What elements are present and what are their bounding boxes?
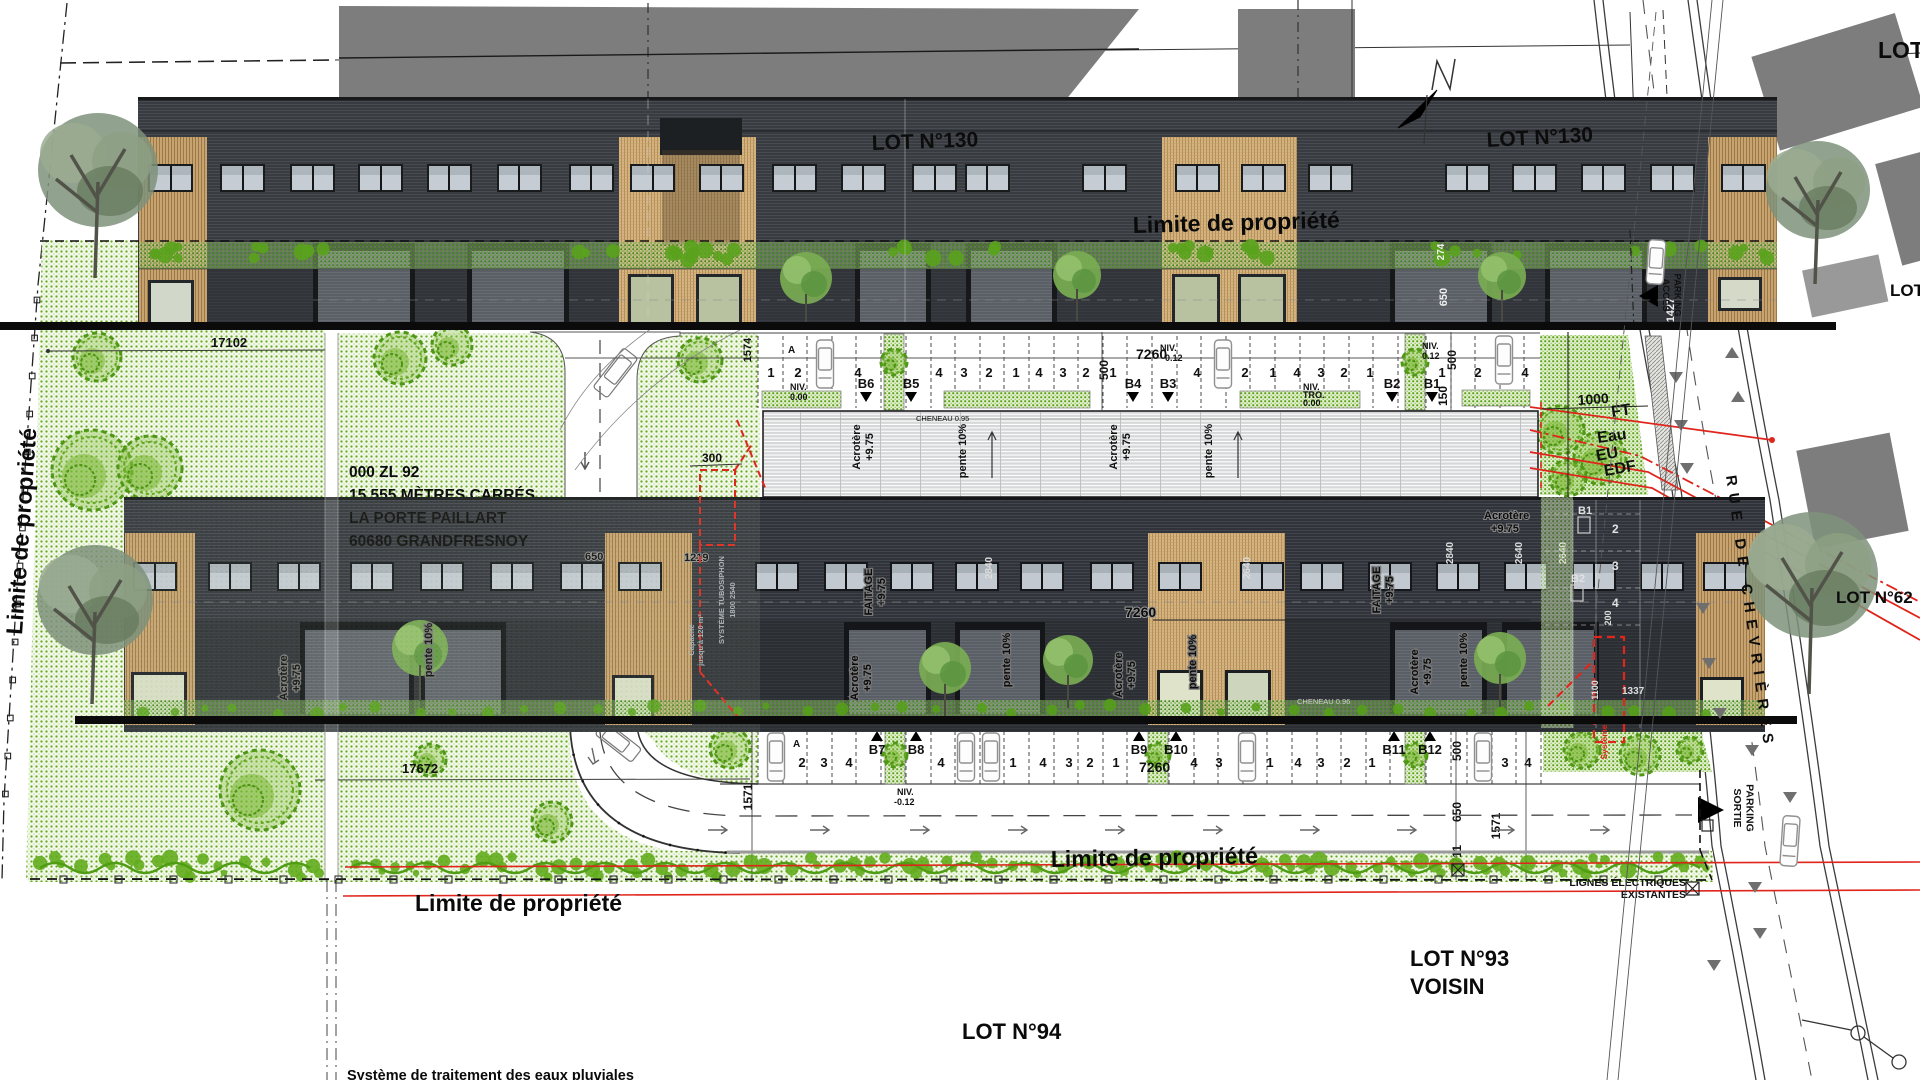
svg-text:PARKING: PARKING	[1671, 273, 1682, 316]
svg-text:3: 3	[1215, 755, 1222, 770]
svg-text:4: 4	[1193, 365, 1201, 380]
svg-text:2: 2	[1082, 365, 1089, 380]
svg-text:A: A	[788, 345, 795, 356]
svg-text:2840: 2840	[1445, 541, 1456, 564]
svg-text:1: 1	[1009, 755, 1016, 770]
svg-text:0.12: 0.12	[1165, 353, 1183, 363]
svg-text:17672: 17672	[402, 761, 438, 776]
svg-text:+9.75: +9.75	[864, 433, 876, 461]
svg-text:1: 1	[1269, 365, 1276, 380]
svg-text:B2: B2	[1571, 573, 1585, 585]
svg-text:Système: Système	[1599, 724, 1609, 759]
svg-text:PARKING: PARKING	[1744, 784, 1756, 832]
svg-text:2: 2	[794, 365, 801, 380]
svg-text:274: 274	[1436, 243, 1447, 260]
svg-text:2: 2	[1241, 365, 1248, 380]
svg-text:A: A	[793, 739, 800, 750]
svg-text:Acrotère: Acrotère	[851, 424, 863, 469]
svg-text:Acrotère: Acrotère	[1484, 510, 1529, 522]
svg-text:2: 2	[1340, 365, 1347, 380]
svg-text:Limite de propriété: Limite de propriété	[415, 890, 622, 916]
svg-text:+9.75: +9.75	[1491, 523, 1519, 535]
svg-text:FT: FT	[1610, 401, 1632, 421]
svg-text:Acrotère: Acrotère	[1113, 652, 1125, 697]
svg-text:CHENEAU 0.95: CHENEAU 0.95	[916, 414, 969, 423]
svg-text:4: 4	[1524, 755, 1532, 770]
svg-text:+9.75: +9.75	[1126, 661, 1138, 689]
svg-text:B5: B5	[903, 376, 920, 391]
svg-text:B11: B11	[1382, 742, 1405, 757]
svg-text:500: 500	[1097, 360, 1111, 380]
svg-text:1000: 1000	[1577, 390, 1609, 408]
svg-text:LIGNES ÉLECTRIQUES: LIGNES ÉLECTRIQUES	[1569, 876, 1686, 889]
svg-text:pente 10%: pente 10%	[1203, 424, 1215, 479]
svg-text:1: 1	[1366, 365, 1373, 380]
svg-text:7260: 7260	[1125, 604, 1156, 620]
svg-text:7260: 7260	[1139, 759, 1170, 775]
svg-text:pente 10%: pente 10%	[1001, 633, 1013, 688]
svg-text:FAITAGE: FAITAGE	[863, 569, 875, 616]
svg-text:LOT: LOT	[1878, 37, 1920, 63]
svg-text:B3: B3	[1160, 376, 1177, 391]
svg-text:1: 1	[767, 365, 774, 380]
svg-text:3: 3	[960, 365, 967, 380]
svg-text:0.00: 0.00	[1303, 398, 1321, 408]
svg-text:4: 4	[935, 365, 943, 380]
svg-text:2640: 2640	[1514, 541, 1525, 564]
svg-text:B4: B4	[1125, 376, 1142, 391]
svg-text:Acrotère: Acrotère	[1108, 424, 1120, 469]
svg-text:4: 4	[1612, 596, 1619, 610]
svg-text:NIV.: NIV.	[897, 787, 914, 797]
svg-text:B6: B6	[858, 376, 875, 391]
svg-text:+9.75: +9.75	[1384, 576, 1396, 604]
svg-text:200: 200	[1603, 610, 1613, 625]
svg-text:1571: 1571	[1489, 812, 1503, 839]
svg-text:+9.75: +9.75	[862, 664, 874, 692]
svg-text:2640: 2640	[1242, 556, 1253, 579]
svg-text:3: 3	[1059, 365, 1066, 380]
svg-text:1337: 1337	[1622, 686, 1645, 697]
svg-text:4: 4	[1190, 755, 1198, 770]
svg-text:B9: B9	[1131, 742, 1148, 757]
svg-text:1574: 1574	[742, 337, 754, 362]
svg-text:650: 650	[1438, 288, 1450, 306]
svg-text:Système de traitement des eaux: Système de traitement des eaux pluviales	[347, 1068, 634, 1080]
svg-text:150: 150	[1436, 386, 1450, 406]
svg-text:3: 3	[820, 755, 827, 770]
svg-text:pente 10%: pente 10%	[1458, 633, 1470, 688]
svg-text:7260: 7260	[1136, 346, 1167, 362]
svg-text:3: 3	[1612, 559, 1619, 573]
svg-text:2840: 2840	[984, 556, 995, 579]
svg-text:B8: B8	[908, 742, 925, 757]
svg-text:4: 4	[1294, 755, 1302, 770]
svg-text:FAITAGE: FAITAGE	[1371, 567, 1383, 614]
svg-text:4: 4	[937, 755, 945, 770]
svg-text:3: 3	[1065, 755, 1072, 770]
svg-text:Limite de propriété: Limite de propriété	[1132, 207, 1340, 238]
svg-text:B7: B7	[869, 742, 886, 757]
svg-text:500: 500	[1450, 741, 1464, 761]
svg-text:3: 3	[1317, 755, 1324, 770]
svg-text:+9.75: +9.75	[1121, 433, 1133, 461]
svg-text:LOT N°94: LOT N°94	[962, 1019, 1062, 1044]
svg-text:pente 10%: pente 10%	[1187, 635, 1199, 690]
svg-text:VOISIN: VOISIN	[1410, 974, 1485, 999]
svg-text:2: 2	[985, 365, 992, 380]
svg-text:1: 1	[1266, 755, 1273, 770]
svg-text:1: 1	[1368, 755, 1375, 770]
svg-text:B12: B12	[1418, 742, 1442, 757]
svg-text:2: 2	[1474, 365, 1481, 380]
svg-text:LOT N°93: LOT N°93	[1410, 946, 1509, 971]
svg-text:LOT N°130: LOT N°130	[871, 128, 978, 155]
svg-text:LOT N°62: LOT N°62	[1836, 588, 1913, 607]
svg-text:1: 1	[1012, 365, 1019, 380]
svg-text:EXISTANTES: EXISTANTES	[1621, 889, 1686, 901]
svg-text:650: 650	[1450, 802, 1464, 822]
svg-text:17102: 17102	[211, 335, 247, 350]
svg-text:4: 4	[1035, 365, 1043, 380]
svg-text:B2: B2	[1384, 376, 1401, 391]
svg-text:4: 4	[845, 755, 853, 770]
svg-text:Acrotère: Acrotère	[849, 655, 861, 700]
svg-text:0.00: 0.00	[790, 392, 808, 402]
svg-text:1: 1	[1112, 755, 1119, 770]
svg-text:3: 3	[1501, 755, 1508, 770]
svg-text:B10: B10	[1164, 742, 1188, 757]
svg-text:4: 4	[1293, 365, 1301, 380]
svg-text:B1: B1	[1578, 505, 1592, 517]
svg-text:NIV.: NIV.	[790, 382, 807, 392]
svg-text:NIV.: NIV.	[1422, 341, 1439, 351]
svg-text:pente 10%: pente 10%	[957, 424, 969, 479]
svg-text:+9.75: +9.75	[1422, 658, 1434, 686]
svg-text:000 ZL 92: 000 ZL 92	[349, 464, 419, 481]
svg-text:300: 300	[702, 451, 722, 465]
svg-text:-0.12: -0.12	[894, 797, 915, 807]
svg-text:Acrotère: Acrotère	[1409, 649, 1421, 694]
svg-text:2: 2	[1086, 755, 1093, 770]
svg-text:2: 2	[1612, 522, 1619, 536]
svg-text:4: 4	[1521, 365, 1529, 380]
svg-text:1100: 1100	[1590, 680, 1600, 700]
svg-text:Limite de propriété: Limite de propriété	[1051, 842, 1258, 872]
svg-text:3: 3	[1317, 365, 1324, 380]
svg-text:2: 2	[798, 755, 805, 770]
svg-text:500: 500	[1445, 350, 1459, 370]
svg-text:0.12: 0.12	[1422, 351, 1440, 361]
svg-text:CHENEAU 0.96: CHENEAU 0.96	[1297, 697, 1350, 706]
svg-text:2: 2	[1343, 755, 1350, 770]
svg-text:1571: 1571	[741, 783, 755, 810]
svg-text:SORTIE: SORTIE	[1731, 788, 1743, 827]
svg-text:LOT: LOT	[1890, 281, 1920, 300]
svg-text:4: 4	[1039, 755, 1047, 770]
